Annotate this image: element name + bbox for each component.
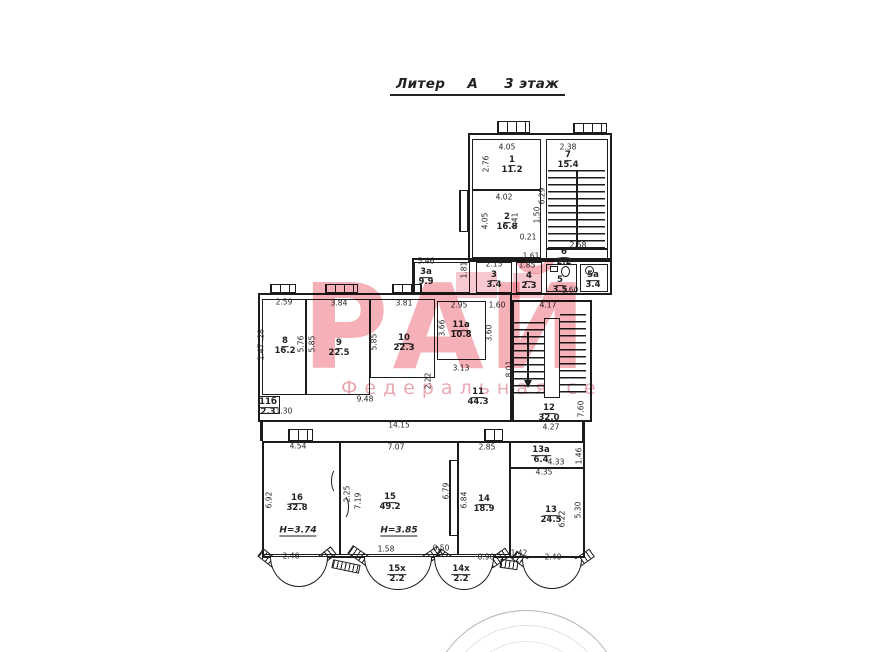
dimension-label: 2.85: [479, 443, 496, 452]
wall: [582, 422, 585, 441]
dimension-label: 0.21: [520, 233, 537, 242]
room-area: 32.8: [287, 505, 308, 514]
plan-title: Литер А 3 этаж: [390, 76, 565, 96]
dimension-label: 2.58: [570, 241, 587, 250]
dimension-label: 1.50: [533, 207, 542, 224]
plan-title-letter: А: [467, 76, 478, 92]
dimension-label: 1.42: [511, 549, 528, 558]
dimension-label: 2.46: [283, 552, 300, 561]
flue-hatch: [497, 121, 530, 133]
room-label-14: 1418.9: [474, 487, 495, 515]
dimension-label: 4.05: [481, 213, 490, 230]
dimension-label: 7.60: [577, 401, 586, 418]
wall: [260, 422, 263, 441]
dimension-label: 4.02: [496, 193, 513, 202]
dimension-label: 1.47: [257, 344, 266, 361]
flue-hatch: [288, 429, 313, 441]
room-label-15: 1549.2: [380, 485, 401, 513]
dimension-label: 2.40: [545, 553, 562, 562]
room-area: 2.2: [387, 576, 406, 585]
flue-hatch: [449, 460, 459, 536]
room-label-12: 1232.0: [539, 396, 560, 424]
room-area: 6.4: [531, 457, 551, 466]
room-area: 32.0: [539, 415, 560, 424]
plan-title-floor: 3 этаж: [504, 76, 559, 92]
dimension-label: 2.25: [343, 486, 352, 503]
dimension-label: 2.76: [482, 156, 491, 173]
dimension-label: 2.59: [276, 298, 293, 307]
dimension-label: 6.79: [442, 483, 451, 500]
room-area: 49.2: [380, 504, 401, 513]
dimension-label: 14.15: [388, 421, 409, 430]
wall: [576, 170, 578, 248]
flue-hatch: [573, 123, 607, 133]
dimension-label: 0.90: [478, 553, 495, 562]
dimension-label: 4.54: [290, 442, 307, 451]
room-label-8: 816.2: [275, 329, 296, 357]
room-area: 15.4: [558, 162, 579, 171]
ceiling-height-label: Н=3.74: [279, 526, 316, 537]
dimension-label: 4.27: [543, 423, 560, 432]
bay-window-arc: [270, 557, 328, 587]
room-label-16: 1632.8: [287, 486, 308, 514]
room-area: 24.5: [541, 517, 562, 526]
room-area: 44.3: [468, 399, 489, 408]
dimension-label: .28: [257, 329, 266, 341]
dimension-label: 6.29: [538, 188, 547, 205]
bay-window-arc: [522, 559, 582, 589]
room-label-1: 111.2: [502, 148, 523, 176]
watermark-subtext: Федеральная се: [341, 377, 603, 399]
room-area: 16.2: [275, 348, 296, 357]
room-label-2: 216.8: [497, 205, 518, 233]
room-area: 2.2: [451, 576, 470, 585]
dimension-label: 6.92: [265, 492, 274, 509]
dimension-label: 0.50: [433, 544, 450, 553]
room-area: 18.9: [474, 506, 495, 515]
room-label-13: 1324.5: [541, 498, 562, 526]
watermark-logo: РАЙ: [302, 268, 591, 386]
room-area: 16.8: [497, 224, 518, 233]
flue-hatch: [484, 429, 503, 441]
room-area: 11.2: [502, 167, 523, 176]
dimension-label: 1.58: [378, 545, 395, 554]
dimension-label: 1.30: [276, 407, 293, 416]
plan-title-liter: Литер: [396, 76, 445, 92]
flue-hatch: [459, 190, 468, 232]
room-label-15х: 15х2.2: [387, 557, 406, 585]
dimension-label: 4.35: [536, 468, 553, 477]
room-label-7: 715.4: [558, 143, 579, 171]
scanned-floor-plan-page: Литер А 3 этаж 111.2216.8715.462.23а9.93…: [0, 0, 870, 652]
dimension-label: 5.30: [574, 502, 583, 519]
dimension-label: 7.07: [388, 443, 405, 452]
dimension-label: 7.19: [354, 493, 363, 510]
room-label-14х: 14х2.2: [451, 557, 470, 585]
room-label-11б: 11б2.3: [258, 390, 278, 418]
window-hatch: [331, 559, 360, 574]
room-label-13а: 13а6.4: [531, 438, 551, 466]
dimension-label: 6.84: [460, 492, 469, 509]
dimension-label: 1.46: [575, 448, 584, 465]
room-area: 2.3: [258, 409, 278, 418]
flue-hatch: [270, 284, 296, 293]
ceiling-height-label: Н=3.85: [380, 526, 417, 537]
